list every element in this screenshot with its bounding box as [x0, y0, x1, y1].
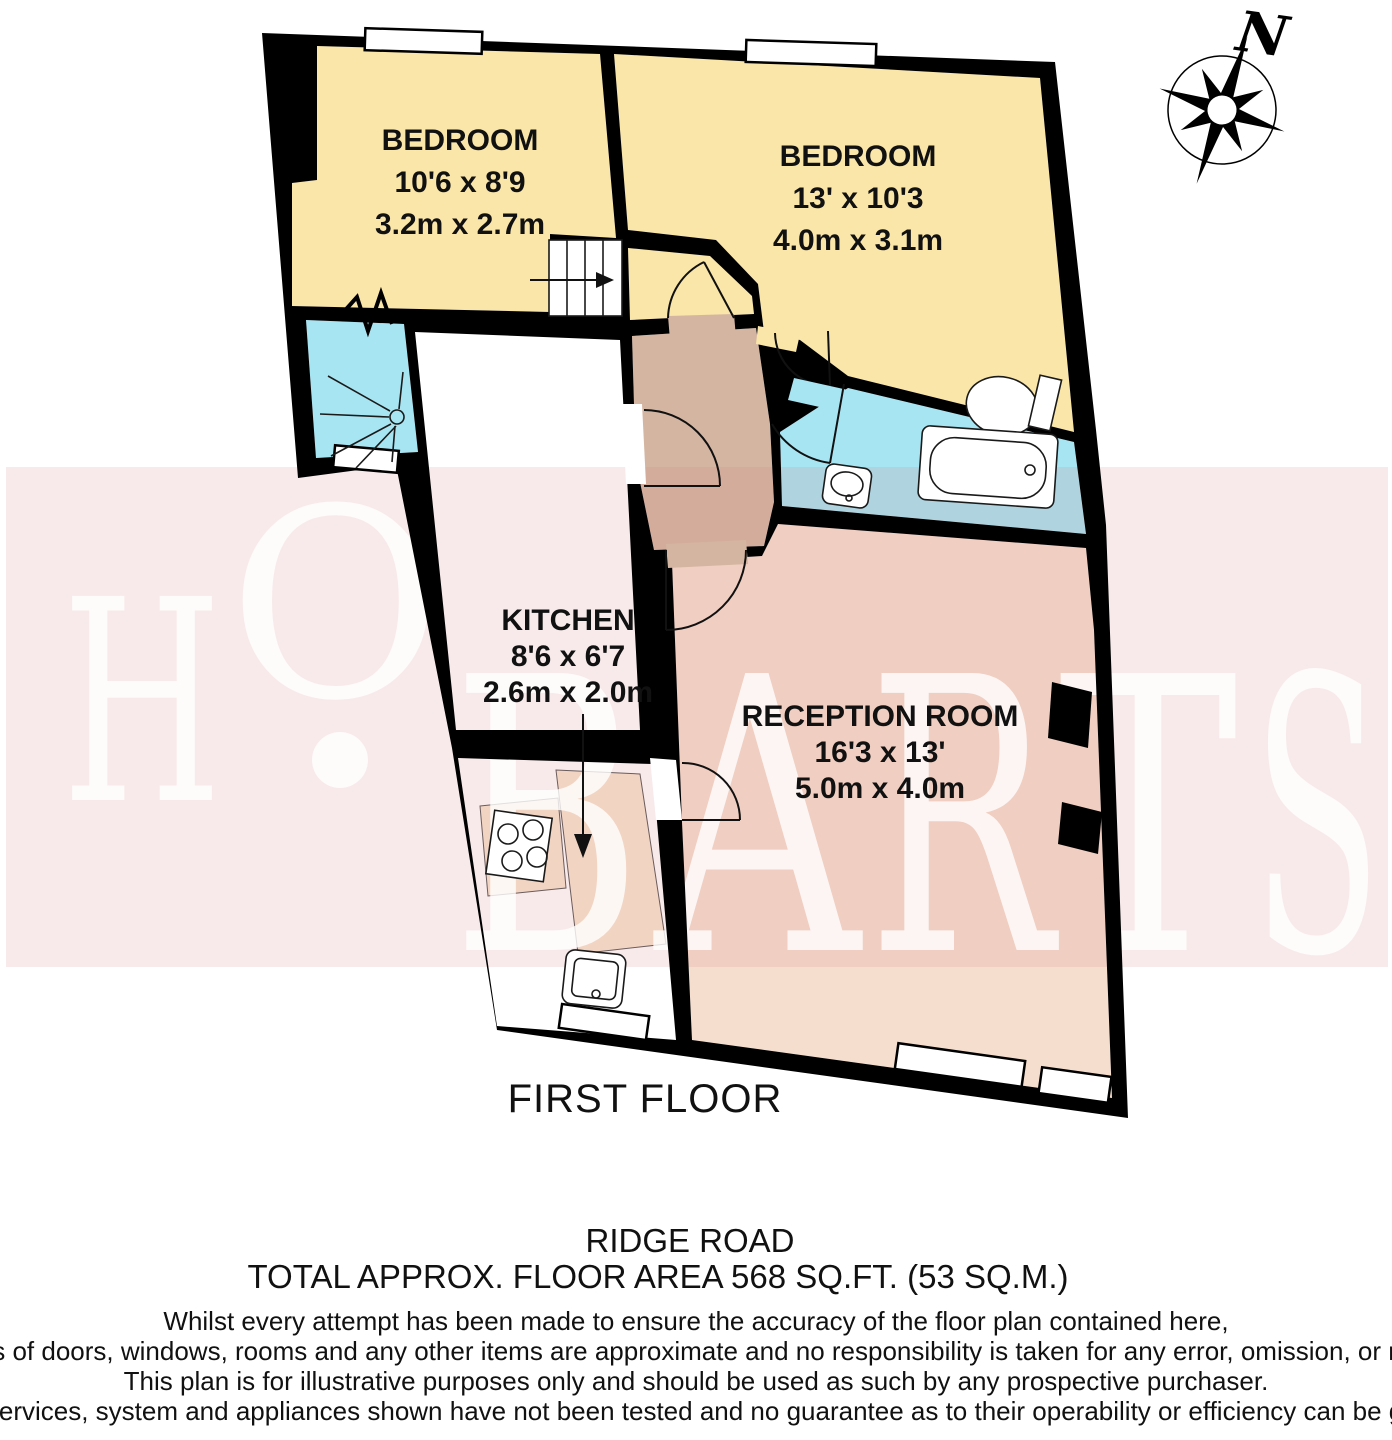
bedroom1-imperial: 10'6 x 8'9: [394, 166, 525, 199]
address: RIDGE ROAD: [585, 1222, 794, 1259]
disclaimer-line-4: The services, system and appliances show…: [0, 1396, 1392, 1426]
sink-fixture: [561, 949, 626, 1009]
bedroom1-metric: 3.2m x 2.7m: [375, 208, 545, 241]
compass-north-label: N: [1231, 0, 1295, 71]
floorplan-canvas: H O B A R T S: [0, 0, 1392, 1440]
total-area: TOTAL APPROX. FLOOR AREA 568 SQ.FT. (53 …: [248, 1258, 1069, 1295]
reception-metric: 5.0m x 4.0m: [795, 772, 965, 805]
watermark-letter-r: R: [868, 597, 1060, 1040]
disclaimer-line-3: This plan is for illustrative purposes o…: [124, 1366, 1269, 1396]
floor-title: FIRST FLOOR: [508, 1077, 783, 1121]
window-bedroom2: [746, 40, 877, 66]
bathtub-fixture: [918, 425, 1059, 508]
kitchen-name: KITCHEN: [501, 604, 634, 637]
watermark-letter-h: H: [62, 541, 222, 867]
disclaimer-line-1: Whilst every attempt has been made to en…: [163, 1306, 1228, 1336]
bedroom1-name: BEDROOM: [382, 124, 539, 157]
compass-rose: N: [1134, 0, 1310, 205]
watermark-letter-s: S: [1252, 597, 1382, 1040]
kitchen-imperial: 8'6 x 6'7: [511, 640, 625, 673]
kitchen-metric: 2.6m x 2.0m: [483, 676, 653, 709]
window-bedroom1: [365, 28, 483, 54]
hob-fixture: [486, 810, 552, 881]
reception-name: RECEPTION ROOM: [742, 700, 1019, 733]
basin-fixture: [821, 463, 872, 509]
door-gap-void: [622, 404, 646, 484]
captions: FIRST FLOOR RIDGE ROAD TOTAL APPROX. FLO…: [0, 1077, 1392, 1426]
door-gap-reception: [666, 540, 748, 568]
door-gap-landing-hall: [668, 314, 736, 340]
watermark: H O B A R T S: [6, 453, 1388, 1040]
watermark-dot: [312, 732, 368, 788]
bedroom2-name: BEDROOM: [780, 140, 937, 173]
bedroom2-imperial: 13' x 10'3: [792, 182, 923, 215]
reception-imperial: 16'3 x 13': [814, 736, 945, 769]
disclaimer-line-2: measurements of doors, windows, rooms an…: [0, 1336, 1392, 1366]
chimney-breast-upper: [1048, 682, 1092, 748]
bedroom2-metric: 4.0m x 3.1m: [773, 224, 943, 257]
